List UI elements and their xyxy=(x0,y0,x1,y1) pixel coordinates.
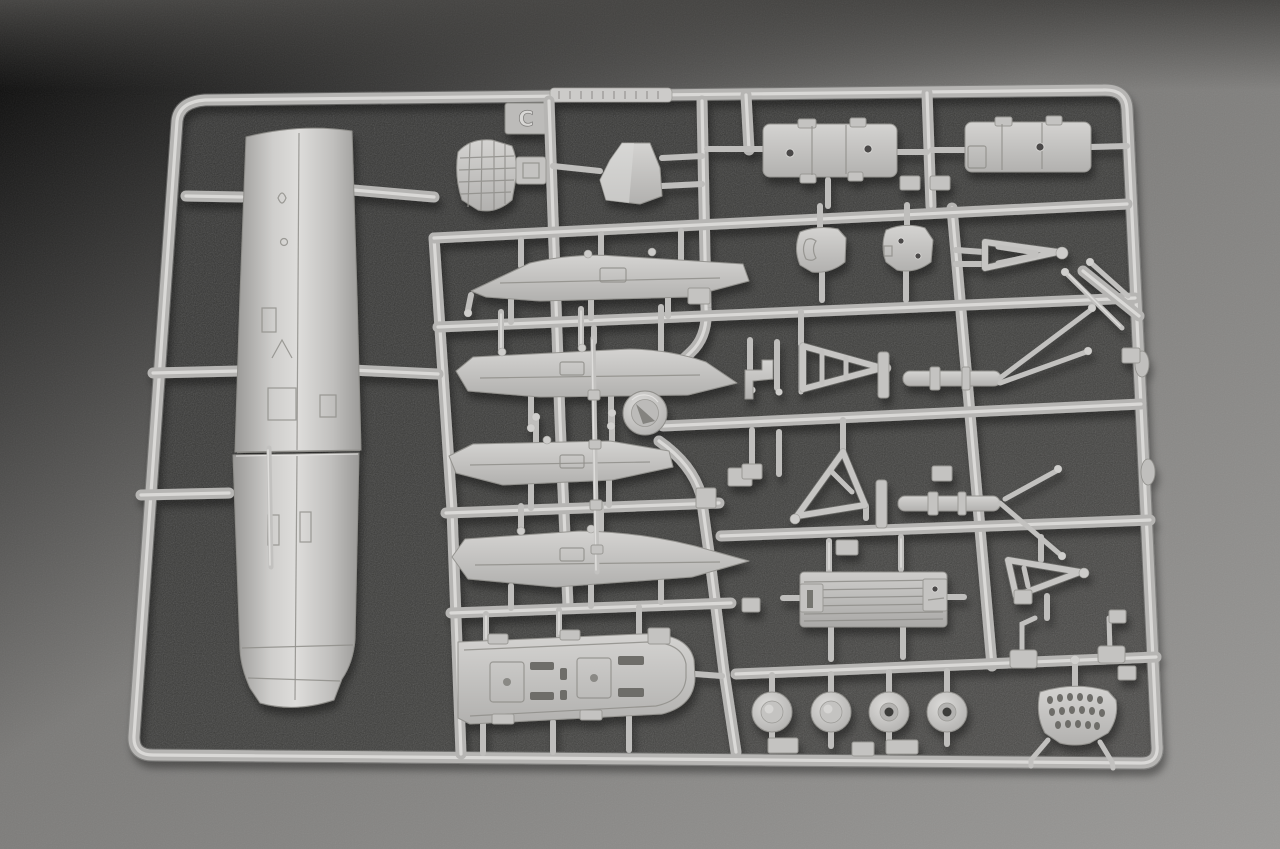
part-wheel-hub-holed-4 xyxy=(927,692,967,732)
part-hatch-panel-left xyxy=(763,118,897,183)
part-small-door-right xyxy=(883,225,933,271)
wheel-pad-tab xyxy=(886,740,918,754)
part-wheel-hub-domed-1 xyxy=(752,692,792,732)
photo-model-kit-sprue: C xyxy=(0,0,1280,849)
part-wheel-hub-domed-2 xyxy=(811,692,851,732)
part-grooved-ramp-plate xyxy=(800,572,947,627)
sprue-letter-c: C xyxy=(518,107,533,131)
sprue-letter-tab: C xyxy=(505,103,547,134)
molding-text-strip xyxy=(550,88,672,102)
wheel-pad-tab xyxy=(768,738,798,753)
ejector-boss xyxy=(1141,459,1155,485)
part-wheel-hub-holed-3 xyxy=(869,692,909,732)
part-hatch-panel-right xyxy=(965,116,1091,172)
part-small-door-left xyxy=(797,228,847,273)
part-fuselage-half xyxy=(233,128,361,707)
part-round-cap-disc xyxy=(623,391,667,435)
